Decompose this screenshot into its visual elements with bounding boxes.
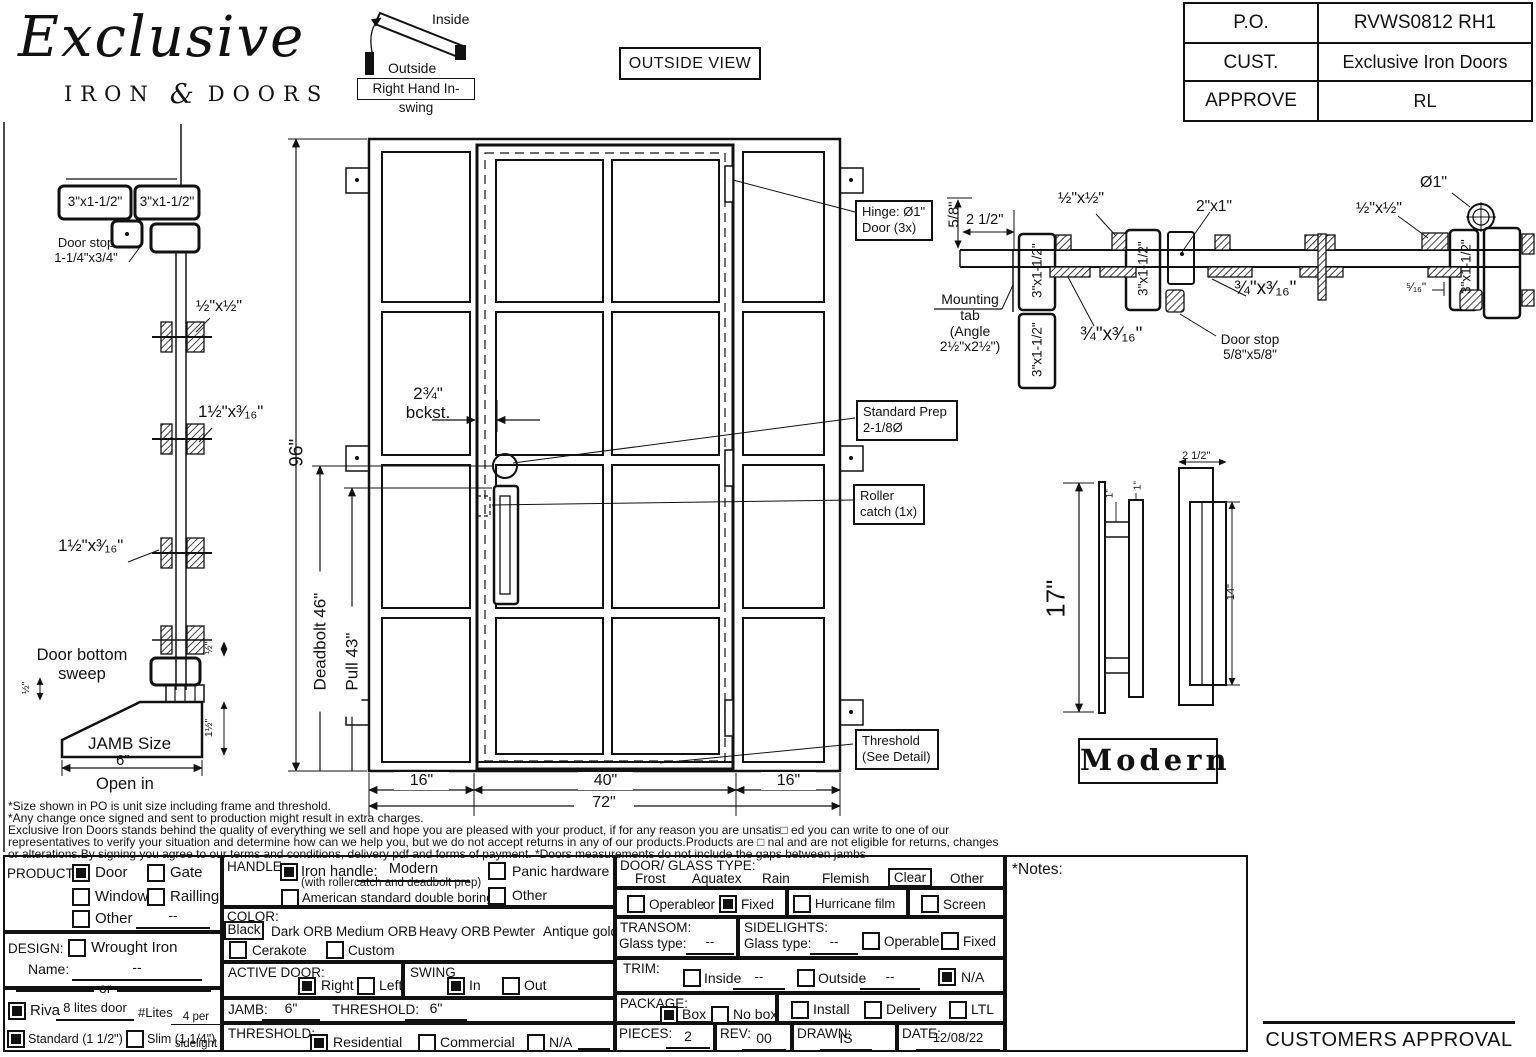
panic-label: Panic hardware xyxy=(512,864,609,880)
active-left-label: Left xyxy=(379,978,402,994)
color-option-dark-orb[interactable]: Dark ORB xyxy=(271,924,333,939)
transom-glass-label: Glass type: xyxy=(619,936,687,951)
handle-detail-art xyxy=(1063,462,1240,713)
po-label: P.O. xyxy=(1185,4,1317,43)
active-right-checkbox[interactable] xyxy=(298,977,316,995)
head-clip-34-left: ¾"x³⁄₁₆" xyxy=(1080,324,1142,345)
riva-value[interactable]: 8 lites door xyxy=(56,1000,134,1021)
jamb-tube-left-label: 3"x1-1/2" xyxy=(61,194,129,209)
package-nobox-checkbox[interactable] xyxy=(711,1006,729,1024)
logo-title: Exclusive xyxy=(18,6,305,69)
drawn-value[interactable]: IS xyxy=(820,1030,872,1051)
jamb-clip-mid-label: 1½"x³⁄₁₆" xyxy=(198,402,263,421)
trim-outside-value[interactable]: -- xyxy=(860,969,920,990)
panic-checkbox[interactable] xyxy=(488,862,506,880)
customers-approval-label: CUSTOMERS APPROVAL xyxy=(1256,1029,1522,1052)
product-other-checkbox[interactable] xyxy=(72,910,90,928)
lites-value-top: 4 per xyxy=(171,1011,221,1025)
jamb-size-value: 6” xyxy=(116,753,129,770)
or-divider-left xyxy=(16,990,94,992)
pieces-value[interactable]: 2 xyxy=(666,1028,710,1049)
swing-out-checkbox[interactable] xyxy=(502,977,520,995)
swing-outside-label: Outside xyxy=(388,61,436,77)
jamb-clip-small-label: ½"x½" xyxy=(196,298,242,316)
product-gate-label: Gate xyxy=(170,865,203,882)
sidelights-operable-checkbox[interactable] xyxy=(862,932,880,950)
fixed-label: Fixed xyxy=(741,897,774,912)
screen-checkbox[interactable] xyxy=(921,895,939,913)
glass-or-label: or xyxy=(703,897,715,912)
head-dim-212: 2 1/2" xyxy=(966,212,1003,228)
operable-label: Operable xyxy=(649,897,705,912)
iron-handle-note: (with rollercatch and deadbolt prep) xyxy=(301,877,481,890)
swing-in-label: In xyxy=(469,978,481,994)
hurricane-label: Hurricane film xyxy=(815,897,895,912)
product-window-label: Window xyxy=(95,889,148,906)
head-hinge-dia-label: Ø1" xyxy=(1420,174,1447,192)
glass-selected[interactable]: Clear xyxy=(888,868,932,887)
outside-view-label: OUTSIDE VIEW xyxy=(619,47,761,80)
jamb-door-stop-label: Door stop 1-1/4"x3/4" xyxy=(40,236,132,265)
glass-rain[interactable]: Rain xyxy=(762,871,790,886)
threshold-na-checkbox[interactable] xyxy=(527,1034,545,1052)
color-option-heavy-orb[interactable]: Heavy ORB xyxy=(419,924,490,939)
standard-label: Standard (1 1/2") xyxy=(28,1032,123,1046)
head-clip-half-right: ½"x½" xyxy=(1356,200,1402,218)
custom-color-label: Custom xyxy=(348,943,395,958)
hurricane-checkbox[interactable] xyxy=(793,895,811,913)
handle-height-dim: 17" xyxy=(1041,569,1070,629)
swing-caption: Right Hand In-swing xyxy=(357,78,475,100)
design-name-label: Name: xyxy=(28,962,69,978)
pull-dim: Pull 43" xyxy=(342,607,361,717)
width-left-dim: 16" xyxy=(394,772,449,790)
handle-label: HANDLE: xyxy=(227,859,286,874)
sidelights-fixed-label: Fixed xyxy=(963,934,996,949)
head-tube-2x1-label: 2"x1" xyxy=(1196,198,1232,216)
width-total-dim: 72" xyxy=(574,794,634,812)
jamb-dim-half-right: ½" xyxy=(204,633,216,663)
mounting-tab-label: Mounting tab (Angle 2½"x2½") xyxy=(928,292,1012,355)
slim-checkbox[interactable] xyxy=(126,1030,144,1048)
head-tube-label-2: 3"x1-1/2" xyxy=(1029,315,1044,385)
notes-box xyxy=(1005,855,1248,1052)
glass-aquatex[interactable]: Aquatex xyxy=(692,871,742,886)
commercial-checkbox[interactable] xyxy=(418,1034,436,1052)
product-window-checkbox[interactable] xyxy=(72,888,90,906)
product-railing-checkbox[interactable] xyxy=(147,888,165,906)
drawing-sheet: Exclusive IRON & DOORS Inside Outside Ri… xyxy=(0,0,1536,1057)
color-selected[interactable]: Black xyxy=(224,921,264,940)
lites-value[interactable]: 4 per sidelight xyxy=(171,998,221,1057)
handle-width-dim: 2 1/2" xyxy=(1182,450,1210,462)
threshold-type-label: THRESHOLD: xyxy=(228,1026,315,1041)
approve-value: RL xyxy=(1317,80,1531,121)
width-mid-dim: 40" xyxy=(578,772,633,790)
threshold-callout: Threshold (See Detail) xyxy=(855,729,939,770)
trim-inside-checkbox[interactable] xyxy=(683,969,701,987)
transom-glass-value[interactable]: -- xyxy=(686,934,734,955)
product-door-checkbox[interactable] xyxy=(72,864,90,882)
drawing-linework xyxy=(0,0,1536,860)
head-door-stop-label: Door stop 5/8"x5/8" xyxy=(1204,332,1296,363)
or-label: or xyxy=(99,981,111,997)
residential-checkbox[interactable] xyxy=(310,1034,328,1052)
jamb-clip-low-label: 1½"x³⁄₁₆" xyxy=(58,536,123,555)
product-other-value[interactable]: -- xyxy=(136,908,210,929)
handle-other-checkbox[interactable] xyxy=(488,887,506,905)
threshold-na-line[interactable] xyxy=(578,1048,610,1050)
trim-na-checkbox[interactable] xyxy=(938,968,956,986)
signature-line[interactable] xyxy=(1263,1021,1515,1024)
design-name-value[interactable]: -- xyxy=(72,960,202,981)
active-right-label: Right xyxy=(321,978,354,994)
head-dim-58: 5/8" xyxy=(947,193,964,235)
roller-catch-callout: Roller catch (1x) xyxy=(853,484,925,525)
slim-label: Slim (1 1/4") xyxy=(147,1032,215,1046)
custom-color-checkbox[interactable] xyxy=(326,941,344,959)
head-tube-label-4: 3"x1-1/2" xyxy=(1458,232,1473,302)
sidelights-label: SIDELIGHTS: xyxy=(744,920,828,935)
install-label: Install xyxy=(813,1002,850,1018)
threshold-na-label: N/A xyxy=(549,1035,572,1051)
jamb-dim-half-left: ½" xyxy=(21,673,33,703)
elevation-height-dim: 96" xyxy=(286,432,307,474)
handle-dim-1a: 1" xyxy=(1104,482,1115,506)
threshold-size-value[interactable]: 6" xyxy=(405,1000,467,1021)
sidelights-operable-label: Operable xyxy=(884,934,940,949)
swing-inside-label: Inside xyxy=(432,12,469,28)
lites-label: #Lites xyxy=(138,1006,173,1021)
door-elevation-art xyxy=(288,139,863,816)
handle-dim-1b: 1" xyxy=(1132,474,1143,498)
or-divider-right xyxy=(117,990,211,992)
residential-label: Residential xyxy=(333,1035,402,1051)
standard-checkbox[interactable] xyxy=(7,1030,25,1048)
rev-value[interactable]: 00 xyxy=(742,1030,786,1051)
width-right-dim: 16" xyxy=(761,772,816,790)
jamb-dim-one-half: 1½" xyxy=(204,711,216,745)
logo-ampersand-icon: & xyxy=(170,80,194,111)
glass-frost[interactable]: Frost xyxy=(635,871,666,886)
handle-other-label: Other xyxy=(512,888,547,904)
trim-label: TRIM: xyxy=(623,961,660,976)
design-wrought-label: Wrought Iron xyxy=(91,940,177,957)
cerakote-label: Cerakote xyxy=(252,943,307,958)
sidelights-fixed-checkbox[interactable] xyxy=(941,932,959,950)
iron-handle-checkbox[interactable] xyxy=(280,863,298,881)
color-option-medium-orb[interactable]: Medium ORB xyxy=(336,924,417,939)
commercial-label: Commercial xyxy=(440,1035,515,1051)
backset-dim: 2¾" bckst. xyxy=(390,384,466,422)
trim-outside-label: Outside xyxy=(818,971,866,987)
trim-outside-checkbox[interactable] xyxy=(797,969,815,987)
riva-checkbox[interactable] xyxy=(8,1002,26,1020)
product-gate-checkbox[interactable] xyxy=(147,864,165,882)
handle-style-name: Modern xyxy=(1078,738,1218,784)
notes-label: *Notes: xyxy=(1012,861,1063,879)
product-door-label: Door xyxy=(95,865,128,882)
product-railing-label: Railling xyxy=(170,889,219,906)
sidelights-glass-label: Glass type: xyxy=(744,936,812,951)
sidelights-glass-value[interactable]: -- xyxy=(810,934,858,955)
head-dim-516: ⁵⁄₁₆" xyxy=(1406,281,1426,295)
logo-subtitle: IRON & DOORS xyxy=(64,80,329,111)
handle-inner-dim: 14" xyxy=(1225,577,1237,607)
po-table: P.O. RVWS0812 RH1 CUST. Exclusive Iron D… xyxy=(1183,2,1533,122)
standard-prep-callout: Standard Prep 2-1/8Ø xyxy=(856,400,958,441)
transom-label: TRANSOM: xyxy=(620,920,691,935)
american-boring-checkbox[interactable] xyxy=(281,889,299,907)
package-nobox-label: No box xyxy=(733,1007,777,1023)
screen-label: Screen xyxy=(943,897,986,912)
logo-sub-left: IRON xyxy=(64,83,156,107)
head-clip-34-right: ¾"x³⁄₁₆" xyxy=(1234,278,1296,299)
product-other-label: Other xyxy=(95,911,133,928)
logo-sub-right: DOORS xyxy=(208,83,329,107)
jamb-tube-right-label: 3"x1-1/2" xyxy=(137,194,197,209)
cust-label: CUST. xyxy=(1185,42,1317,83)
design-wrought-checkbox[interactable] xyxy=(68,939,86,957)
delivery-checkbox[interactable] xyxy=(864,1001,882,1019)
cust-value: Exclusive Iron Doors xyxy=(1317,42,1531,83)
design-label: DESIGN: xyxy=(8,941,64,956)
american-boring-label: American standard double boring xyxy=(302,891,494,906)
delivery-label: Delivery xyxy=(886,1002,937,1018)
head-tube-label-3: 3"x1-1/2" xyxy=(1135,234,1150,304)
hinge-callout: Hinge: Ø1" Door (3x) xyxy=(855,200,933,241)
fixed-checkbox[interactable] xyxy=(719,895,737,913)
po-value: RVWS0812 RH1 xyxy=(1317,4,1531,43)
package-box-checkbox[interactable] xyxy=(660,1006,678,1024)
install-checkbox[interactable] xyxy=(791,1001,809,1019)
glass-flemish[interactable]: Flemish xyxy=(822,871,869,886)
approve-label: APPROVE xyxy=(1185,80,1317,121)
head-tube-label-1: 3"x1-1/2" xyxy=(1029,236,1044,306)
deadbolt-dim: Deadbolt 46" xyxy=(310,572,329,712)
open-in-label: Open in xyxy=(96,775,154,794)
glass-other[interactable]: Other xyxy=(950,871,984,886)
date-value[interactable]: 12/08/22 xyxy=(916,1030,1000,1051)
trim-na-label: N/A xyxy=(961,970,984,986)
jamb-size-label: JAMB Size xyxy=(88,734,171,753)
product-label: PRODUCT: xyxy=(7,866,76,881)
swing-out-label: Out xyxy=(524,978,547,994)
active-left-checkbox[interactable] xyxy=(357,977,375,995)
cerakote-checkbox[interactable] xyxy=(229,941,247,959)
package-box-label: Box xyxy=(682,1007,706,1023)
swing-in-checkbox[interactable] xyxy=(447,977,465,995)
door-bottom-sweep-label: Door bottom sweep xyxy=(22,646,142,683)
operable-checkbox[interactable] xyxy=(627,895,645,913)
head-clip-half-left: ½"x½" xyxy=(1058,190,1104,208)
color-option-antique-gold[interactable]: Antique gold xyxy=(543,924,618,939)
pieces-label: PIECES: xyxy=(619,1026,672,1041)
ltl-label: LTL xyxy=(971,1002,994,1018)
ltl-checkbox[interactable] xyxy=(949,1001,967,1019)
jamb-size-form-value[interactable]: 6" xyxy=(262,1000,320,1021)
trim-inside-value[interactable]: -- xyxy=(733,969,785,990)
color-option-pewter[interactable]: Pewter xyxy=(493,924,535,939)
